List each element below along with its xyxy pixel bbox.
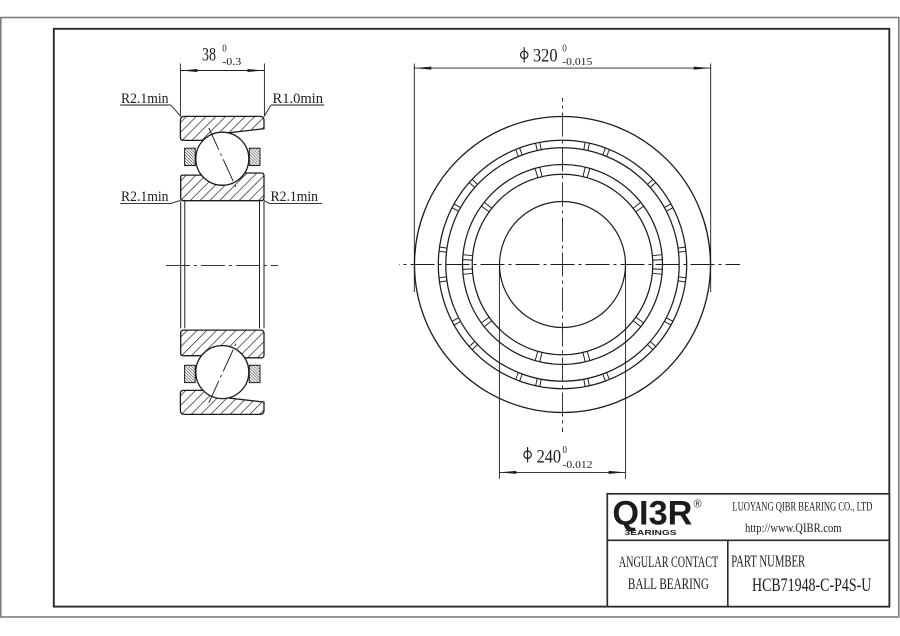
svg-text:BALL BEARING: BALL BEARING (628, 574, 709, 593)
svg-text:QI3R: QI3R (612, 495, 692, 533)
svg-text:HCB71948-C-P4S-U: HCB71948-C-P4S-U (752, 576, 871, 596)
svg-text:PART NUMBER: PART NUMBER (731, 552, 806, 571)
svg-text:0: 0 (562, 43, 567, 55)
svg-text:ANGULAR CONTACT: ANGULAR CONTACT (619, 552, 719, 571)
svg-text:0: 0 (222, 42, 227, 54)
svg-text:0: 0 (563, 444, 568, 456)
svg-text:38: 38 (202, 45, 216, 66)
svg-text:-0.015: -0.015 (562, 57, 592, 68)
svg-text:240: 240 (537, 447, 562, 468)
svg-text:-0.012: -0.012 (563, 460, 593, 471)
svg-text:3EARINGS: 3EARINGS (625, 528, 677, 537)
svg-text:R2.1min: R2.1min (121, 188, 169, 205)
svg-text:R1.0min: R1.0min (273, 90, 324, 107)
svg-text:320: 320 (533, 45, 558, 66)
svg-text:-0.3: -0.3 (222, 57, 241, 68)
svg-text:R2.1min: R2.1min (271, 188, 319, 205)
svg-text:http://www.QIBR.com: http://www.QIBR.com (745, 520, 842, 535)
svg-text:LUOYANG QIBR BEARING CO., LTD: LUOYANG QIBR BEARING CO., LTD (732, 498, 872, 513)
svg-text:®: ® (694, 499, 702, 511)
svg-text:R2.1min: R2.1min (121, 90, 169, 107)
